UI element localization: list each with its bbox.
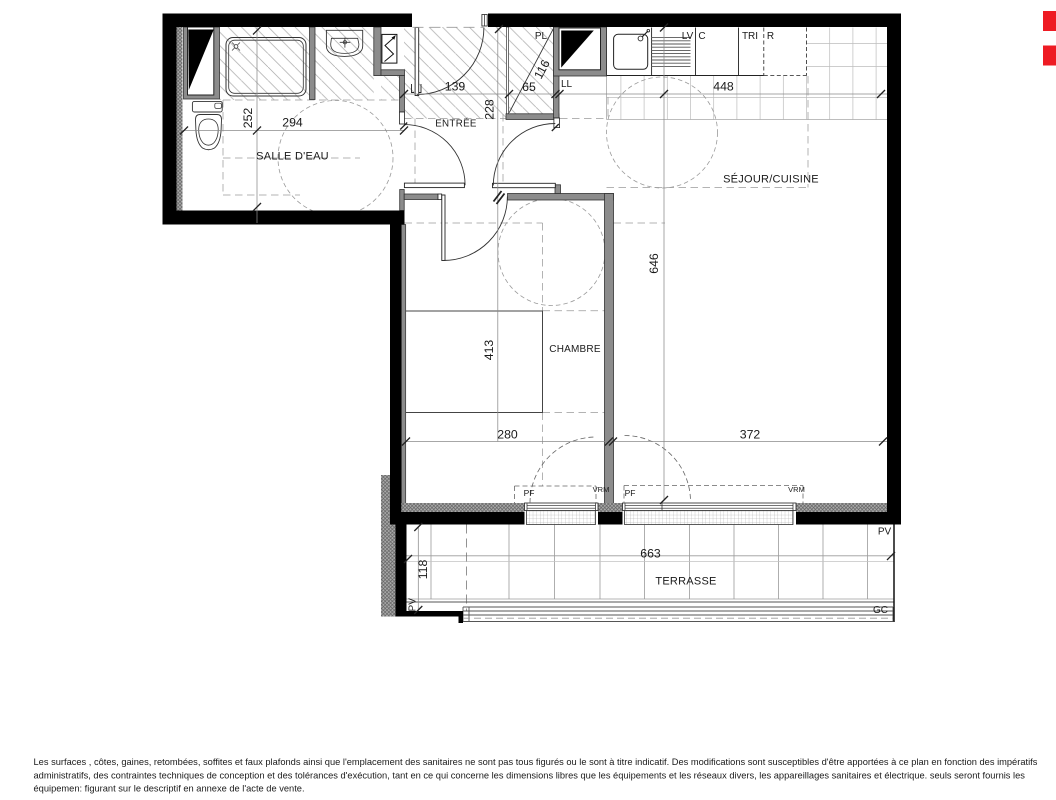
svg-text:448: 448 (713, 80, 734, 94)
svg-text:PF: PF (625, 488, 636, 498)
svg-text:CHAMBRE: CHAMBRE (549, 344, 601, 355)
svg-text:PV: PV (878, 527, 892, 538)
svg-text:LL: LL (561, 79, 573, 90)
svg-text:ENTRÉE: ENTRÉE (435, 119, 477, 130)
svg-text:PV: PV (408, 598, 419, 612)
svg-text:Les surfaces , côtes, gaines,: Les surfaces , côtes, gaines, retombées,… (34, 757, 1038, 767)
svg-text:PL: PL (535, 31, 548, 42)
svg-text:252: 252 (241, 108, 255, 129)
svg-text:TRI: TRI (742, 31, 758, 42)
svg-text:228: 228 (483, 99, 497, 120)
svg-text:65: 65 (522, 80, 536, 94)
svg-text:LV: LV (682, 31, 694, 42)
svg-text:C: C (698, 31, 705, 42)
svg-text:SÉJOUR/CUISINE: SÉJOUR/CUISINE (723, 173, 819, 186)
svg-text:646: 646 (647, 253, 661, 274)
svg-text:372: 372 (740, 428, 761, 442)
svg-text:413: 413 (482, 340, 496, 361)
svg-text:SALLE D'EAU: SALLE D'EAU (256, 151, 329, 163)
svg-text:équipemen: figurant sur le des: équipemen: figurant sur le descriptif en… (34, 784, 305, 794)
svg-text:GC: GC (873, 605, 888, 616)
svg-text:280: 280 (497, 428, 518, 442)
svg-text:administratifs, des contrainte: administratifs, des contraintes techniqu… (34, 771, 1026, 781)
svg-text:TERRASSE: TERRASSE (655, 576, 716, 588)
svg-text:294: 294 (282, 115, 303, 129)
svg-text:118: 118 (416, 560, 430, 580)
svg-text:VRM: VRM (593, 485, 610, 494)
svg-text:PF: PF (524, 488, 535, 498)
svg-text:139: 139 (445, 80, 466, 94)
svg-text:663: 663 (640, 547, 661, 561)
svg-text:R: R (767, 31, 774, 42)
svg-text:VRM: VRM (788, 485, 805, 494)
